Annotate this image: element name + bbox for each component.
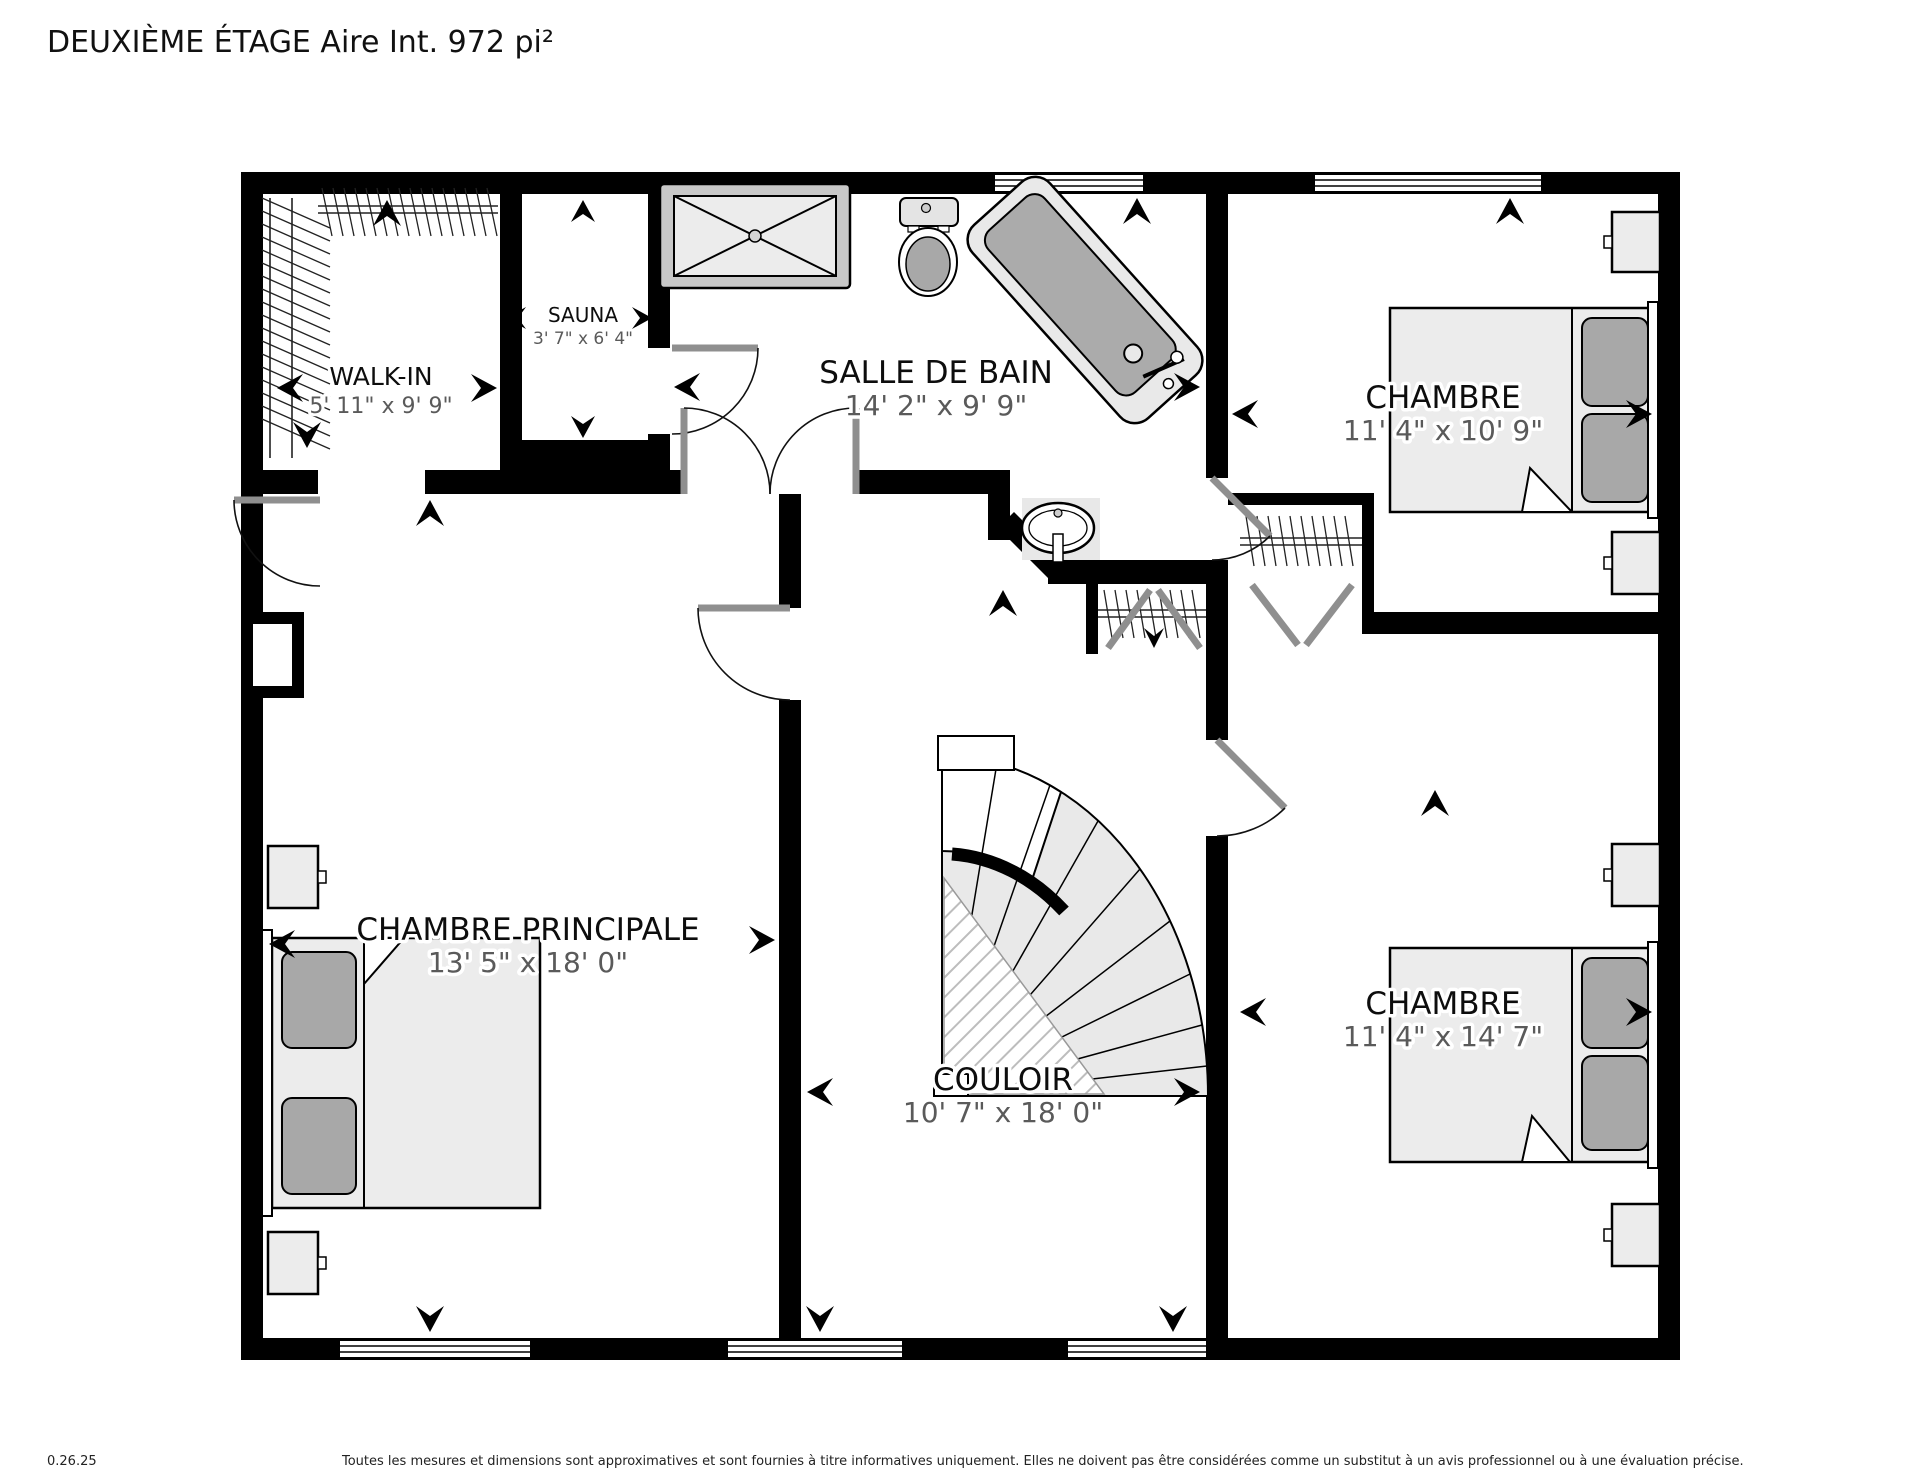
- window-couloir-2: [1068, 1338, 1206, 1360]
- room-dim-chambre2: 11' 4" x 14' 7": [1343, 1020, 1543, 1053]
- footer-disclaimer: Toutes les mesures et dimensions sont ap…: [341, 1454, 1744, 1469]
- closet-rod-walkin-left: [262, 198, 330, 458]
- room-dim-bathroom: 14' 2" x 9' 9": [845, 389, 1027, 422]
- room-dim-sauna: 3' 7" x 6' 4": [533, 329, 633, 349]
- room-label-sauna: SAUNA: [548, 303, 618, 327]
- window-chambre1: [1315, 172, 1541, 194]
- room-label-chambre1: CHAMBRE: [1365, 380, 1520, 416]
- door-chambre2: [1217, 740, 1285, 836]
- fan-staircase: [934, 736, 1208, 1096]
- footer: 0.26.25 Toutes les mesures et dimensions…: [47, 1454, 1744, 1469]
- nightstand: [268, 846, 326, 908]
- nightstand: [1604, 1204, 1660, 1266]
- door-master: [698, 608, 790, 700]
- room-label-chambre2: CHAMBRE: [1365, 986, 1520, 1022]
- window-master: [340, 1338, 530, 1360]
- floorplan-svg: DEUXIÈME ÉTAGE Aire Int. 972 pi²: [0, 0, 1920, 1483]
- page-title: DEUXIÈME ÉTAGE Aire Int. 972 pi²: [47, 24, 554, 60]
- door-bathroom-right: [770, 408, 856, 494]
- nightstand: [1604, 844, 1660, 906]
- room-dim-master: 13' 5" x 18' 0": [428, 946, 628, 979]
- nightstand: [268, 1232, 326, 1294]
- room-label-master: CHAMBRE PRINCIPALE: [356, 912, 699, 948]
- nightstand: [1604, 532, 1660, 594]
- door-chambre1: [1212, 478, 1270, 560]
- closet-rod-walkin-top: [318, 188, 498, 236]
- room-label-walkin: WALK-IN: [329, 362, 432, 391]
- room-label-bathroom: SALLE DE BAIN: [819, 355, 1053, 391]
- nightstand: [1604, 212, 1660, 272]
- bifold-door-chambre2: [1252, 585, 1352, 645]
- door-bathroom-left: [684, 408, 770, 494]
- room-dim-chambre1: 11' 4" x 10' 9": [1343, 414, 1543, 447]
- window-couloir: [728, 1338, 902, 1360]
- sink: [1022, 498, 1100, 562]
- toilet: [899, 198, 958, 296]
- room-dim-couloir: 10' 7" x 18' 0": [903, 1096, 1103, 1129]
- shower: [660, 184, 850, 288]
- floorplan-page: { "title": "DEUXIÈME ÉTAGE Aire Int. 972…: [0, 0, 1920, 1483]
- room-label-couloir: COULOIR: [933, 1062, 1073, 1098]
- bed-chambre2: [1390, 942, 1658, 1168]
- room-dim-walkin: 5' 11" x 9' 9": [309, 394, 452, 419]
- footer-version: 0.26.25: [47, 1454, 97, 1469]
